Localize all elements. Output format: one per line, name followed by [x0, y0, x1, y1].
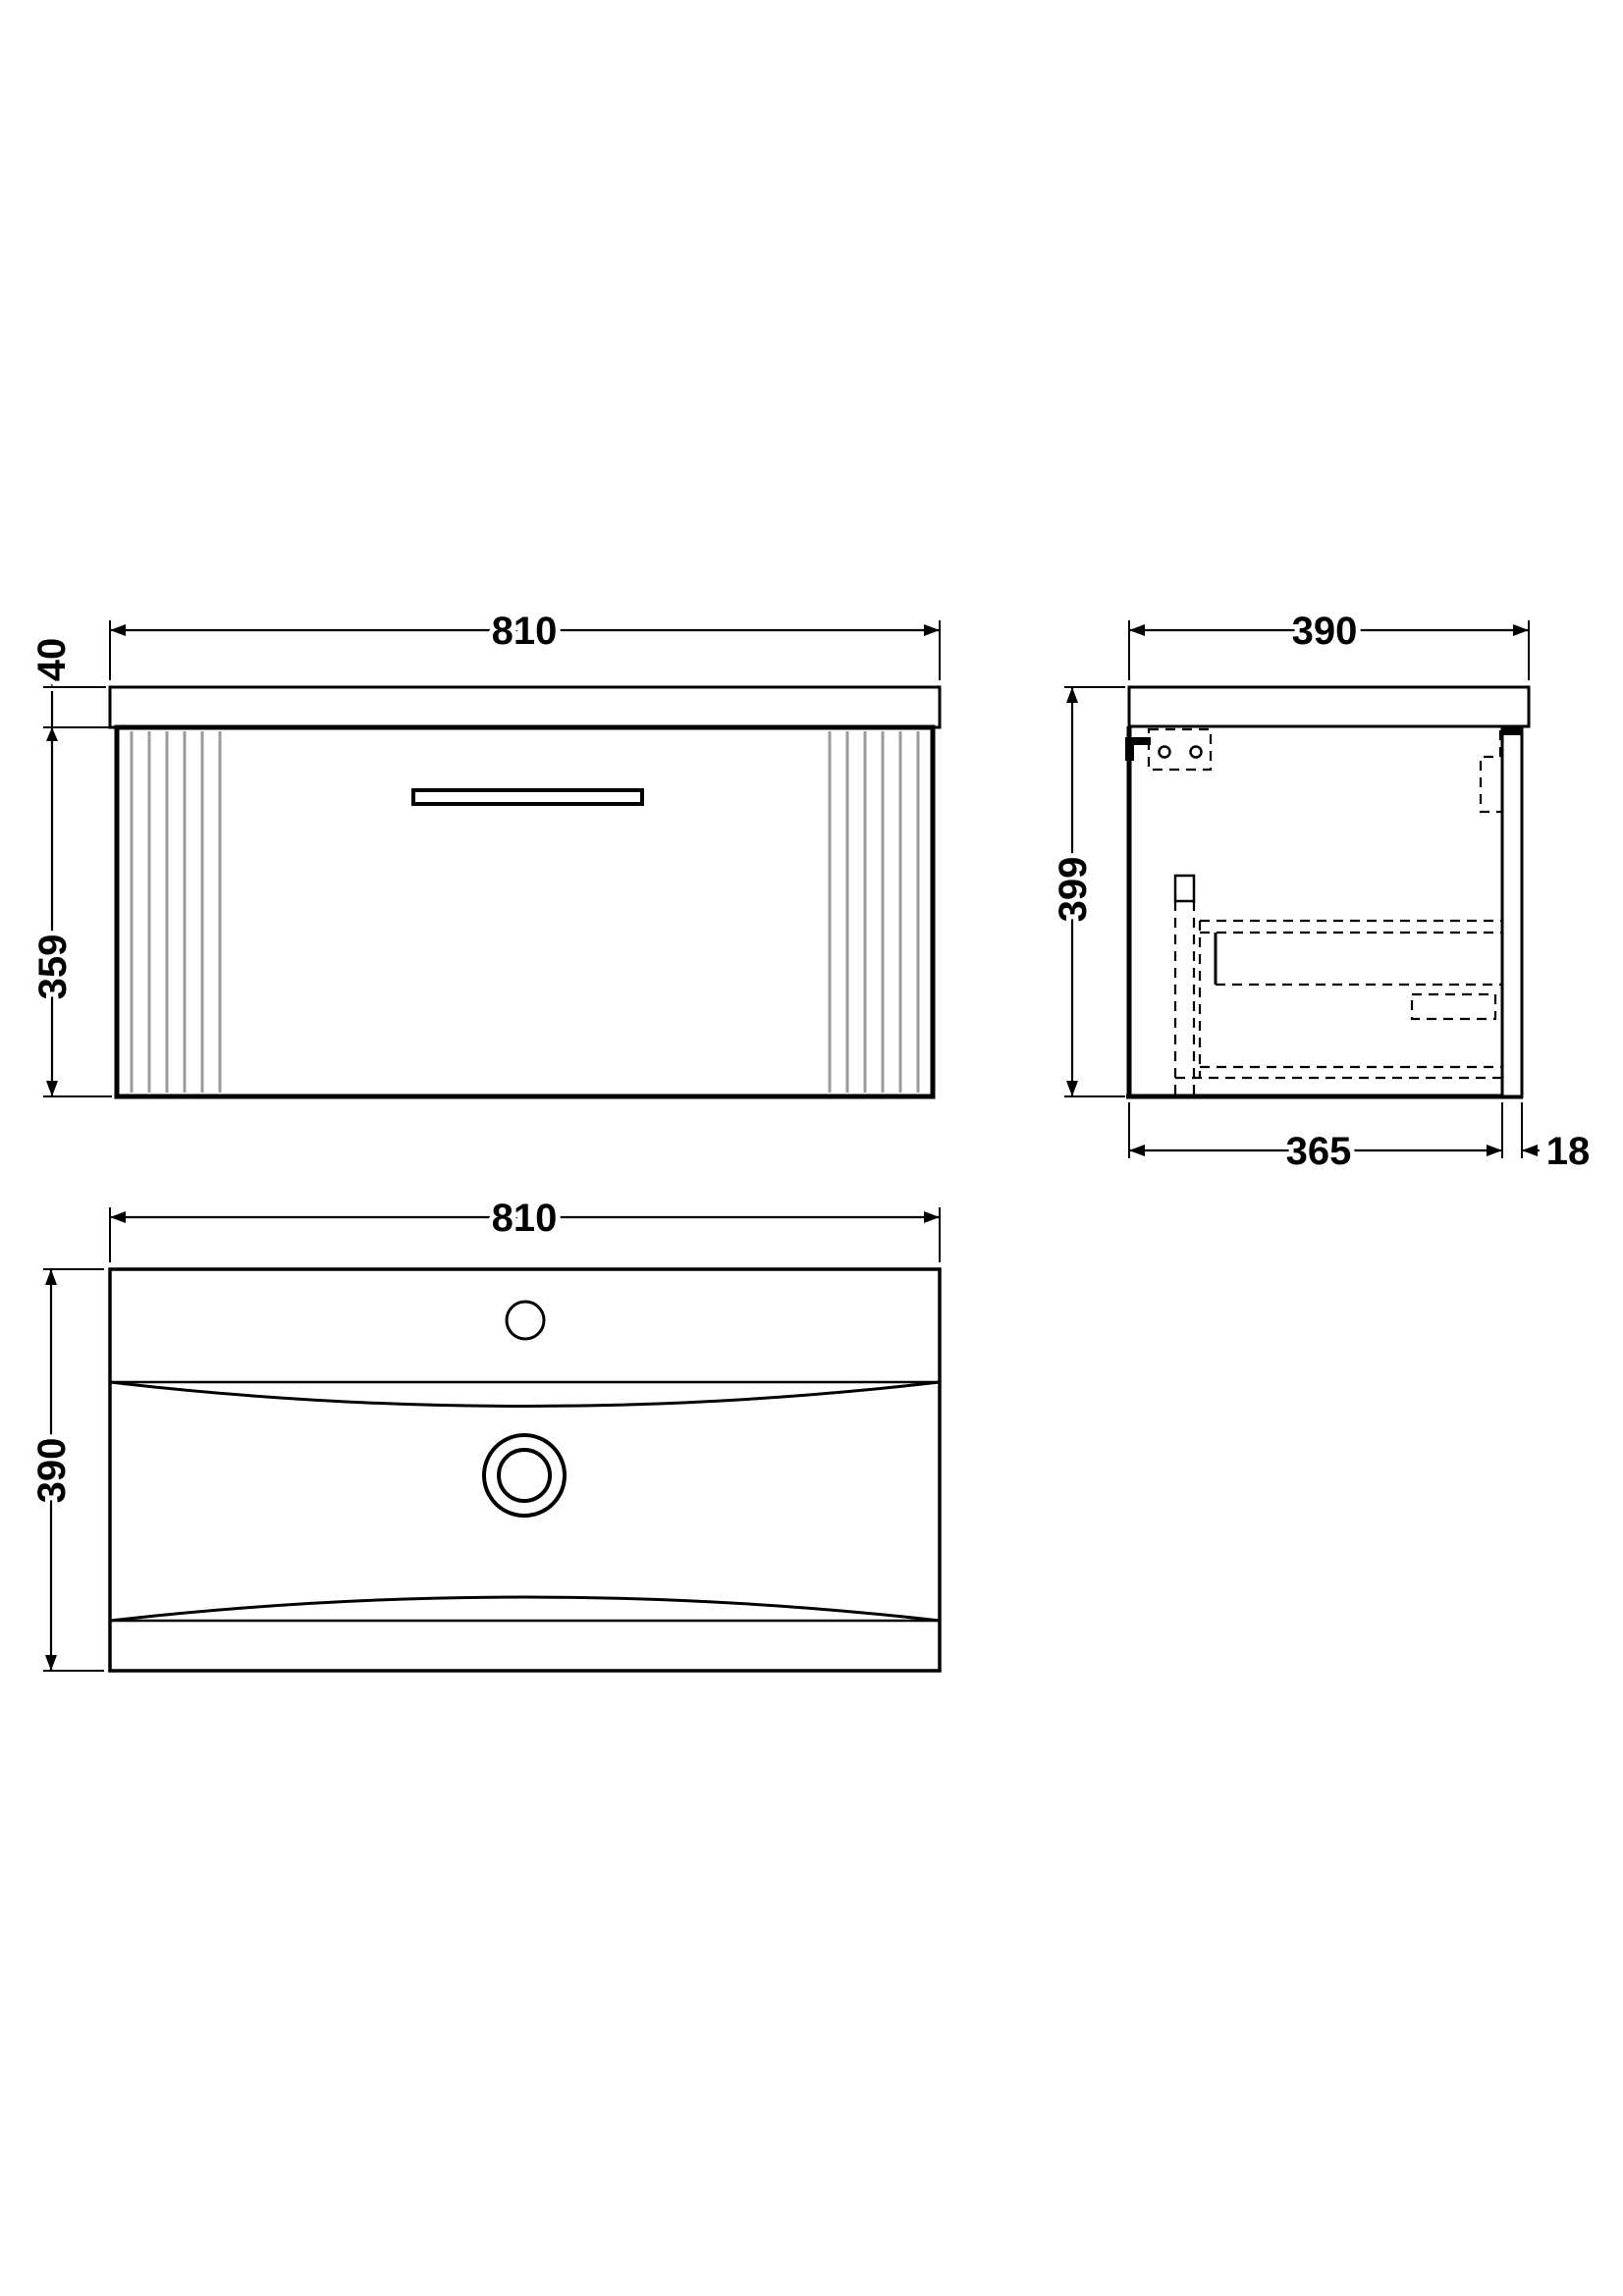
front-cabinet-body — [117, 727, 933, 1096]
side-cabinet-depth-dimension: 365 18 — [1129, 1102, 1590, 1173]
side-depth-dimension: 390 — [1129, 610, 1529, 680]
side-height-dimension: 399 — [1052, 687, 1125, 1096]
basin-plan-view: 810 390 — [30, 1197, 940, 1671]
side-drawer-front-panel — [1502, 728, 1522, 1096]
plan-width-label: 810 — [492, 1197, 558, 1240]
runner-bracket-cap — [1175, 876, 1194, 901]
plan-depth-dimension: 390 — [30, 1269, 104, 1671]
door-fixing-hidden-line — [1481, 730, 1502, 812]
drawer-runner-clip — [1412, 994, 1495, 1019]
wall-bracket-screw-right — [1191, 747, 1202, 758]
side-door-thickness-label: 18 — [1546, 1130, 1591, 1173]
front-width-label: 810 — [492, 610, 558, 653]
front-cabinet-height-label: 359 — [31, 934, 75, 1000]
technical-drawing-page: 810 40 359 — [0, 0, 1623, 2296]
side-cabinet-depth-label: 365 — [1286, 1130, 1352, 1173]
plan-depth-label: 390 — [30, 1438, 74, 1504]
plan-width-dimension: 810 — [110, 1197, 940, 1262]
side-height-label: 399 — [1052, 857, 1095, 923]
front-elevation-view: 810 40 359 — [30, 610, 940, 1096]
side-drawer-front-top-edge — [1502, 728, 1522, 735]
wall-bracket-screw-left — [1160, 747, 1170, 758]
front-worktop-thickness-dimension: 40 — [30, 638, 112, 741]
basin-outer-rim — [110, 1269, 940, 1671]
side-elevation-view: 390 399 365 18 — [1052, 610, 1590, 1173]
side-depth-label: 390 — [1292, 610, 1358, 653]
side-worktop — [1129, 687, 1529, 726]
front-width-dimension: 810 — [110, 610, 940, 680]
drawer-handle — [413, 790, 642, 804]
drawer-box-hidden-lines — [1175, 921, 1502, 1078]
front-worktop-thickness-label: 40 — [30, 638, 74, 682]
front-cabinet-height-dimension: 359 — [31, 727, 112, 1096]
front-worktop — [110, 687, 940, 727]
wall-bracket-hook — [1125, 737, 1151, 761]
